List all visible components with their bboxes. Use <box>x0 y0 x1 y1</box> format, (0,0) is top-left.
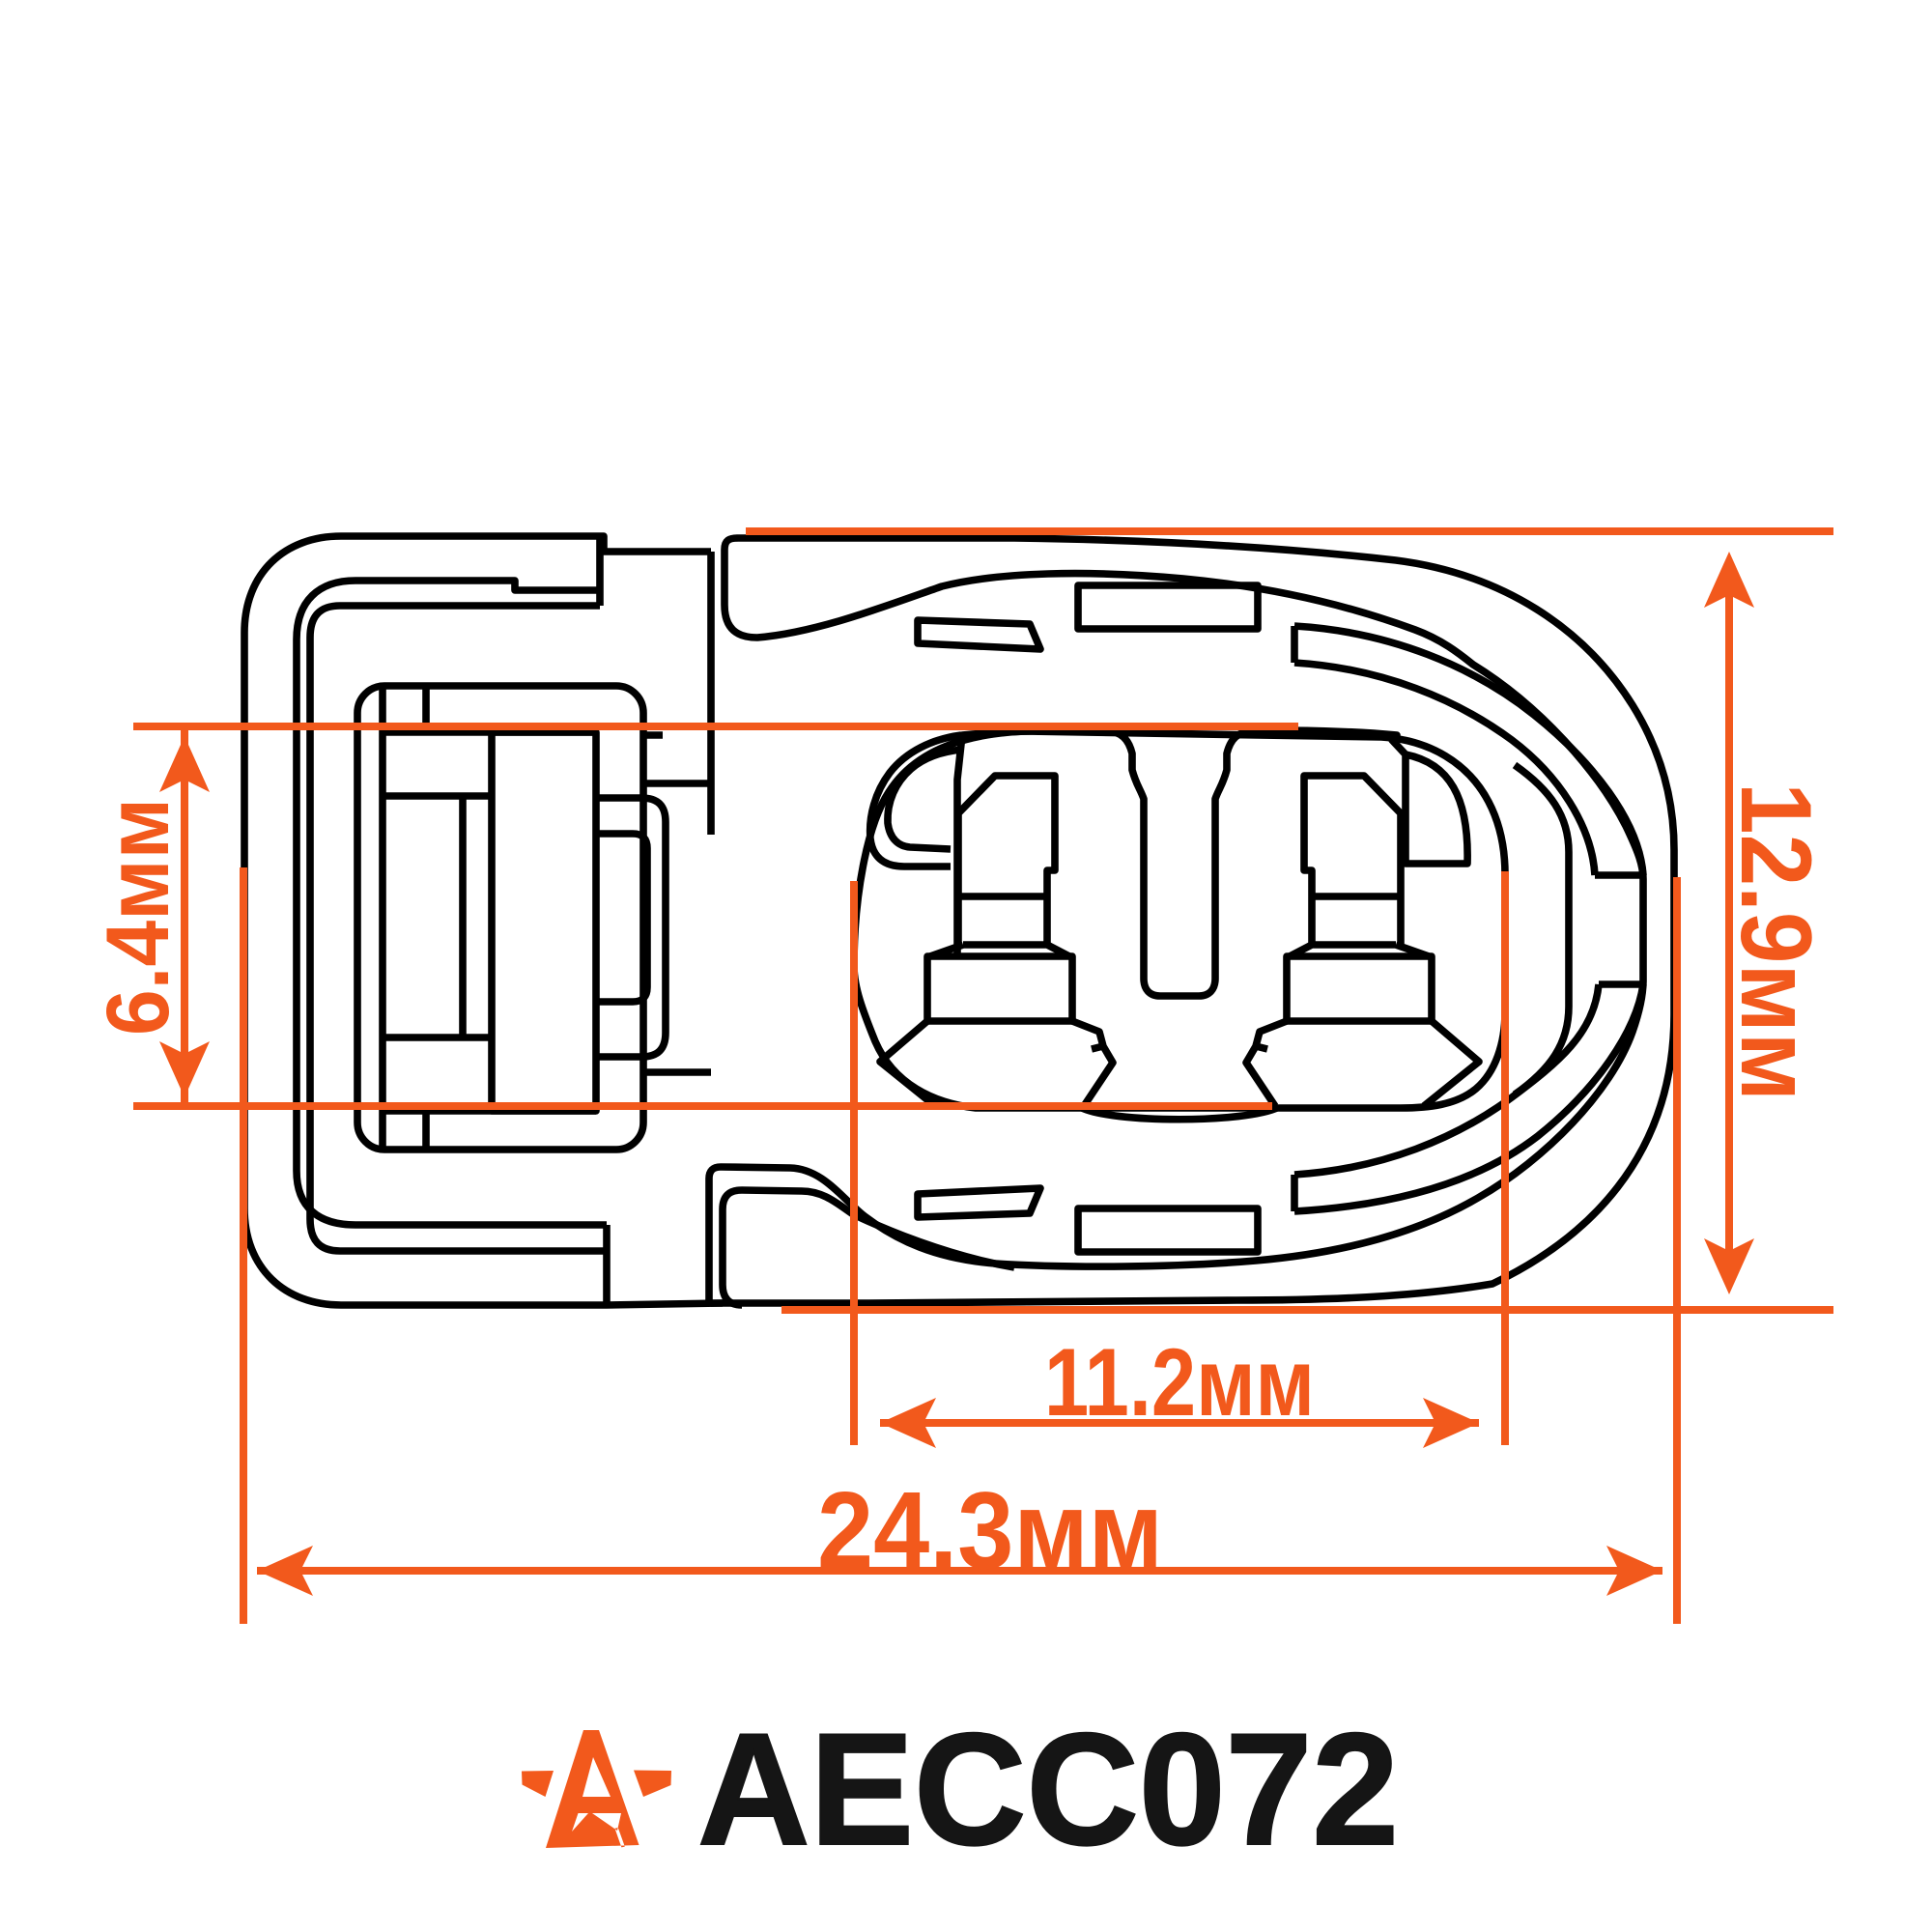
svg-text:6.4мм: 6.4мм <box>89 798 187 1036</box>
svg-text:24.3мм: 24.3мм <box>817 1469 1163 1591</box>
svg-text:AECC072: AECC072 <box>697 1700 1399 1878</box>
svg-text:12.9мм: 12.9мм <box>1719 782 1832 1101</box>
svg-text:11.2мм: 11.2мм <box>1044 1328 1315 1435</box>
